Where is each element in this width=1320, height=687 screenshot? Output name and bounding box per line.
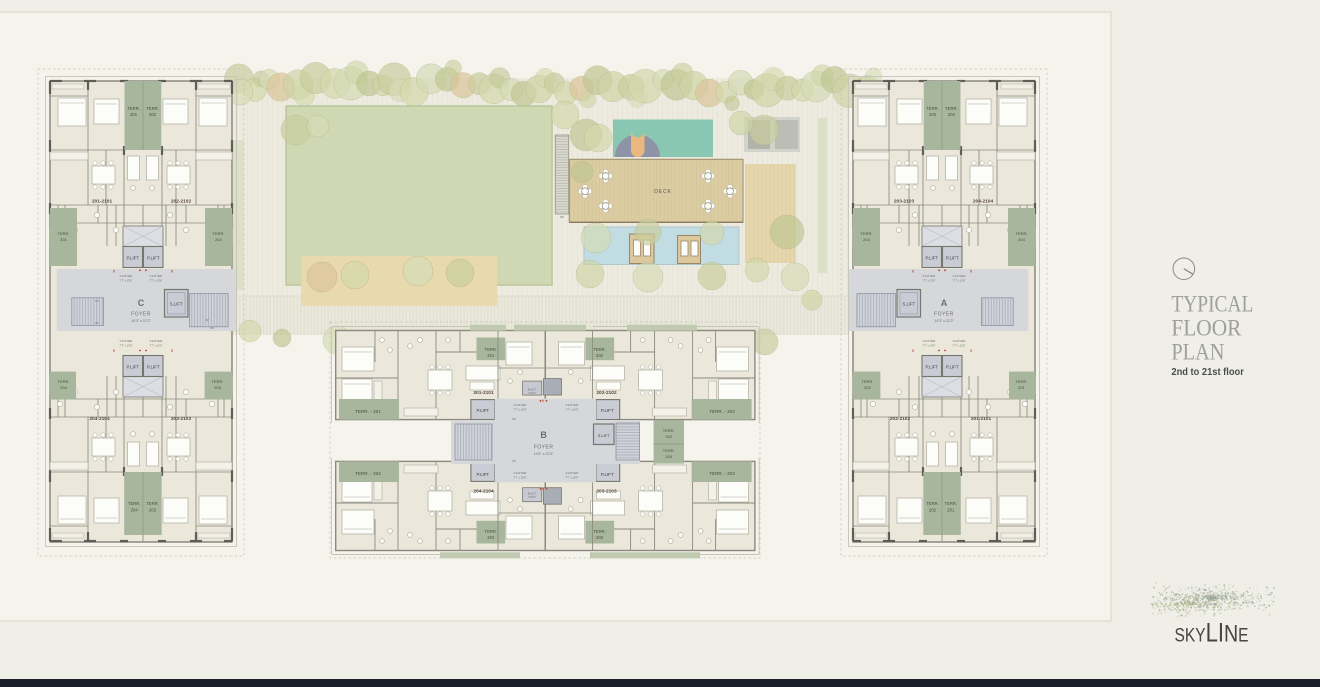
svg-text:TERR.: TERR. — [663, 448, 675, 453]
svg-text:UP: UP — [95, 321, 99, 325]
svg-text:UP: UP — [205, 318, 209, 322]
svg-text:TERR.: TERR. — [127, 106, 140, 111]
svg-text:203-2103: 203-2103 — [894, 199, 915, 205]
svg-text:204: 204 — [487, 535, 495, 540]
svg-text:TERR.: TERR. — [593, 529, 606, 534]
svg-text:TERR.: TERR. — [485, 347, 498, 352]
svg-text:TERR.: TERR. — [146, 106, 159, 111]
svg-text:201-2101: 201-2101 — [473, 390, 494, 396]
svg-text:A: A — [941, 298, 948, 308]
svg-text:FOYER: FOYER — [934, 312, 954, 318]
svg-text:F.FOYER: F.FOYER — [514, 471, 528, 475]
svg-text:F.FOYER: F.FOYER — [566, 403, 580, 407]
svg-text:S.LIFT: S.LIFT — [170, 302, 183, 307]
svg-text:TERR.: TERR. — [213, 231, 225, 236]
svg-text:7'7" x 12'6": 7'7" x 12'6" — [952, 344, 965, 348]
svg-text:7'7" x 13'0": 7'7" x 13'0" — [922, 279, 935, 283]
svg-text:P.LIFT: P.LIFT — [126, 365, 139, 370]
svg-text:7'7" x 16'0": 7'7" x 16'0" — [513, 408, 526, 412]
svg-text:DUCT: DUCT — [529, 391, 537, 395]
svg-text:P.LIFT: P.LIFT — [946, 256, 959, 261]
svg-text:7'7" x 13'0": 7'7" x 13'0" — [922, 344, 935, 348]
svg-text:DN: DN — [512, 417, 516, 421]
svg-text:P.LIFT: P.LIFT — [946, 365, 959, 370]
svg-text:203: 203 — [214, 385, 221, 390]
svg-text:C: C — [138, 298, 145, 308]
svg-text:204: 204 — [131, 508, 139, 513]
svg-text:7'7" x 16'0": 7'7" x 16'0" — [565, 408, 578, 412]
svg-text:202-2102: 202-2102 — [890, 416, 911, 422]
svg-text:203: 203 — [863, 237, 870, 242]
svg-text:P.LIFT: P.LIFT — [601, 408, 614, 413]
svg-text:203: 203 — [149, 508, 157, 513]
svg-text:201: 201 — [60, 237, 67, 242]
svg-text:TERR.: TERR. — [926, 501, 939, 506]
svg-text:TERR.: TERR. — [861, 231, 873, 236]
svg-text:DN: DN — [210, 326, 214, 330]
svg-text:DUCT: DUCT — [529, 495, 537, 499]
svg-text:F.FOYER: F.FOYER — [150, 274, 164, 278]
svg-text:TERR. - 201: TERR. - 201 — [355, 409, 381, 414]
svg-text:201: 201 — [487, 353, 495, 358]
svg-text:7'7" x 16'0": 7'7" x 16'0" — [513, 476, 526, 480]
svg-text:FOYER: FOYER — [534, 445, 554, 451]
svg-text:7'7" x 13'0": 7'7" x 13'0" — [119, 344, 132, 348]
svg-text:P.LIFT: P.LIFT — [147, 365, 160, 370]
svg-text:204: 204 — [948, 112, 956, 117]
svg-text:TERR.: TERR. — [58, 379, 70, 384]
svg-text:204-2104: 204-2104 — [89, 416, 110, 422]
svg-text:F.FOYER: F.FOYER — [953, 274, 967, 278]
svg-text:TERR.: TERR. — [1016, 231, 1028, 236]
svg-text:204-2104: 204-2104 — [473, 489, 494, 495]
svg-text:7'7" x 12'6": 7'7" x 12'6" — [149, 279, 162, 283]
svg-text:7'7" x 16'0": 7'7" x 16'0" — [565, 476, 578, 480]
svg-text:203: 203 — [929, 112, 937, 117]
svg-text:F.FOYER: F.FOYER — [923, 339, 937, 343]
svg-text:TERR.: TERR. — [58, 231, 70, 236]
svg-text:TERR.: TERR. — [593, 347, 606, 352]
svg-text:P.LIFT: P.LIFT — [147, 256, 160, 261]
svg-text:TERR.: TERR. — [926, 106, 939, 111]
svg-text:FLOOR: FLOOR — [1171, 316, 1242, 341]
svg-text:202-2102: 202-2102 — [171, 199, 192, 205]
svg-text:F.FOYER: F.FOYER — [120, 274, 134, 278]
svg-text:TERR.: TERR. — [485, 529, 498, 534]
svg-text:TERR.: TERR. — [128, 501, 141, 506]
svg-text:201: 201 — [1018, 385, 1025, 390]
svg-text:204: 204 — [1018, 237, 1025, 242]
svg-text:204-2104: 204-2104 — [973, 199, 994, 205]
svg-text:P.LIFT: P.LIFT — [925, 256, 938, 261]
svg-text:201: 201 — [130, 112, 138, 117]
svg-text:14'3" x 22'3": 14'3" x 22'3" — [534, 452, 554, 456]
svg-text:203-2103: 203-2103 — [171, 416, 192, 422]
svg-text:203: 203 — [596, 535, 604, 540]
svg-text:TERR.: TERR. — [945, 106, 958, 111]
svg-text:TERR.: TERR. — [945, 501, 958, 506]
svg-text:DN: DN — [560, 215, 564, 219]
svg-text:7'7" x 12'6": 7'7" x 12'6" — [952, 279, 965, 283]
svg-text:P.LIFT: P.LIFT — [476, 408, 489, 413]
svg-text:PLAN: PLAN — [1171, 340, 1224, 365]
svg-text:7'7" x 13'0": 7'7" x 13'0" — [119, 279, 132, 283]
svg-text:203: 203 — [665, 454, 672, 459]
svg-text:F.FOYER: F.FOYER — [566, 471, 580, 475]
svg-text:14'3" x 22'2": 14'3" x 22'2" — [131, 319, 151, 323]
svg-text:F.FOYER: F.FOYER — [923, 274, 937, 278]
svg-text:F.FOYER: F.FOYER — [150, 339, 164, 343]
svg-text:202: 202 — [596, 353, 604, 358]
svg-text:∨: ∨ — [541, 486, 544, 491]
svg-text:FOYER: FOYER — [131, 312, 151, 318]
svg-text:TERR.: TERR. — [146, 501, 159, 506]
svg-text:TERR.: TERR. — [862, 379, 874, 384]
svg-text:F.FOYER: F.FOYER — [514, 403, 528, 407]
svg-text:P.LIFT: P.LIFT — [601, 472, 614, 477]
svg-text:201: 201 — [947, 508, 955, 513]
svg-text:B: B — [540, 430, 547, 440]
svg-text:S.LIFT: S.LIFT — [903, 302, 916, 307]
svg-text:202: 202 — [665, 434, 672, 439]
svg-text:DN: DN — [95, 299, 99, 303]
svg-text:TERR.: TERR. — [663, 428, 675, 433]
svg-text:P.LIFT: P.LIFT — [476, 472, 489, 477]
svg-text:TERR. - 204: TERR. - 204 — [355, 471, 381, 476]
svg-text:S.LIFT: S.LIFT — [598, 433, 611, 438]
svg-text:202: 202 — [929, 508, 937, 513]
svg-text:TERR. - 203: TERR. - 203 — [709, 471, 735, 476]
svg-text:202-2102: 202-2102 — [596, 390, 617, 396]
svg-text:TERR.: TERR. — [212, 379, 224, 384]
svg-text:202: 202 — [149, 112, 157, 117]
svg-text:201-2101: 201-2101 — [92, 199, 113, 205]
svg-text:DECK: DECK — [654, 189, 672, 195]
svg-text:P.LIFT: P.LIFT — [126, 256, 139, 261]
svg-text:∧: ∧ — [541, 398, 544, 403]
svg-text:TYPICAL: TYPICAL — [1171, 292, 1253, 317]
svg-text:204: 204 — [60, 385, 67, 390]
svg-text:202: 202 — [864, 385, 871, 390]
svg-text:P.LIFT: P.LIFT — [925, 365, 938, 370]
svg-text:UP: UP — [512, 459, 516, 463]
svg-text:TERR. - 202: TERR. - 202 — [709, 409, 735, 414]
svg-text:TERR.: TERR. — [1016, 379, 1028, 384]
svg-text:203-2103: 203-2103 — [596, 489, 617, 495]
svg-text:202: 202 — [215, 237, 222, 242]
svg-text:201-2101: 201-2101 — [971, 416, 992, 422]
svg-text:14'3" x 22'2": 14'3" x 22'2" — [934, 319, 954, 323]
svg-text:2nd to 21st floor: 2nd to 21st floor — [1171, 366, 1244, 378]
svg-text:7'7" x 12'6": 7'7" x 12'6" — [149, 344, 162, 348]
svg-text:F.FOYER: F.FOYER — [120, 339, 134, 343]
svg-text:F.FOYER: F.FOYER — [953, 339, 967, 343]
